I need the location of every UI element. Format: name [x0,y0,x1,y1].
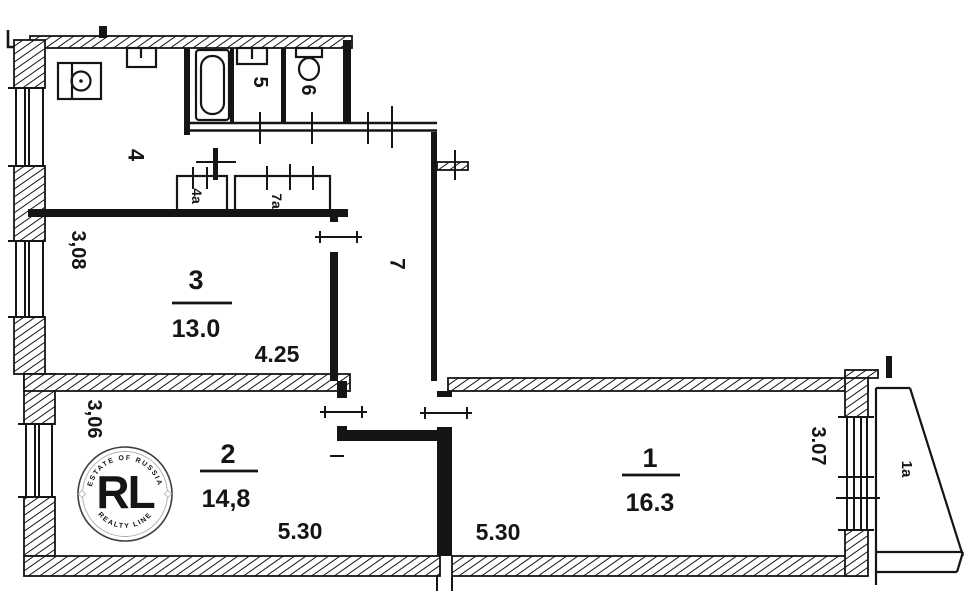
watermark-monogram: RL [96,466,154,518]
wall-stair-stub [437,162,468,170]
wall-left-seg [14,40,45,88]
room-labels: 3 13.0 4.25 3,08 2 14,8 5.30 3,06 1 16.3… [67,76,915,545]
room-5-number: 5 [249,76,271,87]
room-4-number: 4 [123,149,148,162]
room-3-area: 13.0 [172,315,221,343]
wall-left-seg [14,317,45,374]
room-1-height-dim: 3.07 [807,427,829,466]
room-3-width-dim: 4.25 [255,341,300,367]
floor-plan: 3 13.0 4.25 3,08 2 14,8 5.30 3,06 1 16.3… [0,0,973,600]
room-1-area: 16.3 [626,489,675,517]
room-1-width-dim: 5.30 [476,519,521,545]
room-1-number: 1 [642,443,657,473]
room3-door-tick [315,231,362,243]
washbasin-symbol [237,48,267,64]
room2-door-tick [320,406,367,418]
wall-room3-right [330,209,338,222]
wall-corridor-left-lower [337,381,347,398]
room-3-height-dim: 3,08 [67,231,89,270]
stove-dot [79,79,83,83]
window-room2 [18,424,55,497]
window-room3 [8,241,45,317]
wall-room1-top [448,378,868,391]
balcony-corner [957,552,963,572]
room-6-number: 6 [297,84,319,95]
bathtub-inner [201,56,224,114]
wall-partition-1-2 [437,391,452,397]
toilet-tank [296,48,322,57]
room-2-height-dim: 3,06 [83,400,105,439]
window-kitchen [8,88,45,166]
wall-right-seg [845,374,868,417]
kitchen-sink-symbol [127,48,156,67]
wall-room3-right [330,252,338,381]
wall-bottom-left [24,556,440,576]
wall-top [30,36,352,48]
wall-partition-1-2 [437,427,452,556]
closet-7a-label: 7а [269,193,285,209]
wall-left-seg [24,497,55,556]
wall-mid [24,374,350,391]
bathtub-symbol [196,50,229,120]
room-3-number: 3 [188,265,203,295]
closet-4a-label: 4а [189,188,205,204]
wall-bath-divider [281,48,286,122]
wall-right-seg [845,530,868,576]
balcony-slant [910,388,963,556]
wall-corridor-bottom [337,430,452,441]
wall-bath-divider [230,48,234,122]
wall-wc-right [343,40,351,122]
room-2-width-dim: 5.30 [278,518,323,544]
wall-chimney-stub [99,26,107,38]
balcony [876,388,963,585]
wall-corridor-right [431,132,437,381]
balcony-1a-label: 1а [898,461,915,478]
wall-bottom-right [452,556,866,576]
stove-symbol [58,63,101,99]
toilet-bowl [299,58,319,80]
room-2-number: 2 [220,439,235,469]
watermark-logo: ESTATE OF RUSSIA REALTY LINE RL [78,447,172,541]
toilet-symbol [296,48,322,80]
floor-plan-sheet: 3 13.0 4.25 3,08 2 14,8 5.30 3,06 1 16.3… [0,0,973,600]
room-2-area: 14,8 [202,485,251,513]
room1-door-tick [420,407,472,419]
room-7-number: 7 [386,258,409,270]
wall-balcony-stub [886,356,892,378]
wall-left-seg [14,166,45,241]
window-room1 [838,417,874,530]
wall-right-stub [845,370,878,378]
